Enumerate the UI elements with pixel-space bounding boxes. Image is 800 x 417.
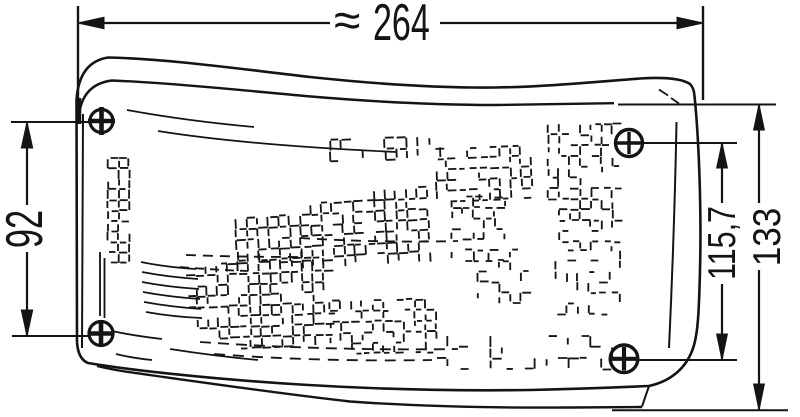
svg-text:133: 133 — [744, 208, 788, 267]
svg-text:≈: ≈ — [334, 0, 360, 48]
svg-text:92: 92 — [0, 210, 54, 248]
svg-text:115,7: 115,7 — [700, 206, 743, 280]
svg-text:264: 264 — [373, 0, 430, 52]
